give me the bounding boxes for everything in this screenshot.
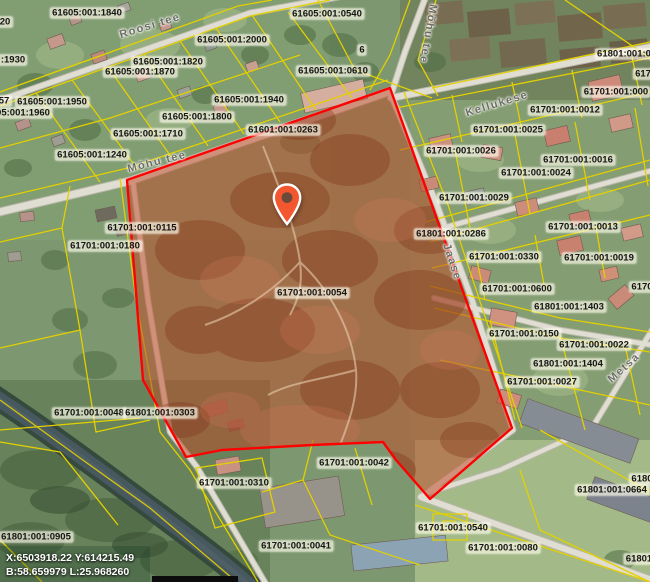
parcel-label: 61701:001:0025 <box>471 125 545 136</box>
parcel-label: 61701:001:0042 <box>317 458 391 469</box>
parcel-label: 61801:001:0303 <box>123 408 197 419</box>
parcel-label: 61701:001:0041 <box>259 541 333 552</box>
parcel-label: 61701:001:0029 <box>437 193 511 204</box>
parcel-label: 6180 <box>629 474 650 485</box>
parcel-label: 61701:001:0013 <box>546 222 620 233</box>
parcel-label: 61605:001:1240 <box>55 150 129 161</box>
parcel-label: 61605:001:1710 <box>111 129 185 140</box>
street-label: Kellukese <box>464 89 530 119</box>
location-pin-icon[interactable] <box>272 183 302 227</box>
parcel-label: 05:001:1960 <box>0 108 52 119</box>
parcel-label: 61701:001:0027 <box>505 377 579 388</box>
street-label: Mõhu tee <box>417 3 439 64</box>
pin-body <box>274 185 300 225</box>
parcel-label: 61701:001:0080 <box>466 543 540 554</box>
parcel-label: 61701:001:0150 <box>487 329 561 340</box>
parcel-label: 617 <box>633 69 650 80</box>
parcel-label: 61701:001:0310 <box>197 478 271 489</box>
parcel-label: 61701:001:0019 <box>562 253 636 264</box>
parcel-label: 61605:001:1840 <box>50 8 124 19</box>
parcel-label: 61701:001:0115 <box>105 223 178 234</box>
parcel-label: 20 <box>0 17 12 28</box>
parcel-label: 61701:001:0330 <box>467 252 541 263</box>
status-coordinates-xy: X:6503918.22 Y:614215.49 <box>6 552 134 564</box>
pin-hole <box>282 192 293 203</box>
parcel-label: 61605:001:1870 <box>103 67 177 78</box>
street-label: Mõhu tee <box>126 149 187 175</box>
parcel-label: 61701:001:0022 <box>557 340 631 351</box>
parcel-label: 61701:001:0600 <box>480 284 554 295</box>
parcel-label: 61801:001:0664 <box>575 485 649 496</box>
parcel-label: 61701:001:0024 <box>499 168 573 179</box>
parcel-label: 61701:001:0054 <box>275 288 349 299</box>
parcel-label: 61701:001:0048 <box>52 408 126 419</box>
parcel-label: 61801:001:1403 <box>532 302 606 313</box>
parcel-label: :1930 <box>0 55 27 66</box>
parcel-label: 61605:001:1950 <box>15 97 89 108</box>
status-coordinates-bl: B:58.659979 L:25.968260 <box>6 566 129 578</box>
parcel-label: 61701:001:0016 <box>541 155 615 166</box>
parcel-label: 61605:001:2000 <box>195 35 269 46</box>
parcel-label: 61801:001:0905 <box>0 532 73 543</box>
parcel-label: 61701:001:000 <box>582 87 650 98</box>
parcel-label: 61605:001:0610 <box>296 66 370 77</box>
parcel-label: 61605:001:0540 <box>290 9 364 20</box>
parcel-label: 61701:001:0026 <box>424 146 498 157</box>
parcel-label: 61801:001:1404 <box>531 359 605 370</box>
parcel-label: 61605:001:1800 <box>160 112 234 123</box>
parcel-label: 6 <box>357 45 366 56</box>
parcel-label: 6170 <box>629 282 650 293</box>
street-label: Jaase <box>440 242 463 282</box>
labels-layer: 61605:001:18402061605:001:200061605:001:… <box>0 0 650 582</box>
parcel-label: 61801:001:0286 <box>414 229 488 240</box>
parcel-label: 61701:001:0540 <box>416 523 490 534</box>
street-label: Roosi tee <box>118 11 182 41</box>
parcel-label: 61801:001:0 <box>595 49 650 60</box>
attribution-bar <box>152 576 238 582</box>
parcel-label: 57 <box>0 96 11 107</box>
parcel-label: 61601:001:0263 <box>246 125 320 136</box>
parcel-label: 61701:001:0180 <box>68 241 142 252</box>
parcel-label: 61801 <box>624 554 650 565</box>
cadastral-map[interactable]: 61605:001:18402061605:001:200061605:001:… <box>0 0 650 582</box>
parcel-label: 61701:001:0012 <box>528 105 602 116</box>
parcel-label: 61605:001:1940 <box>212 95 286 106</box>
street-label: Metsa <box>606 351 643 386</box>
